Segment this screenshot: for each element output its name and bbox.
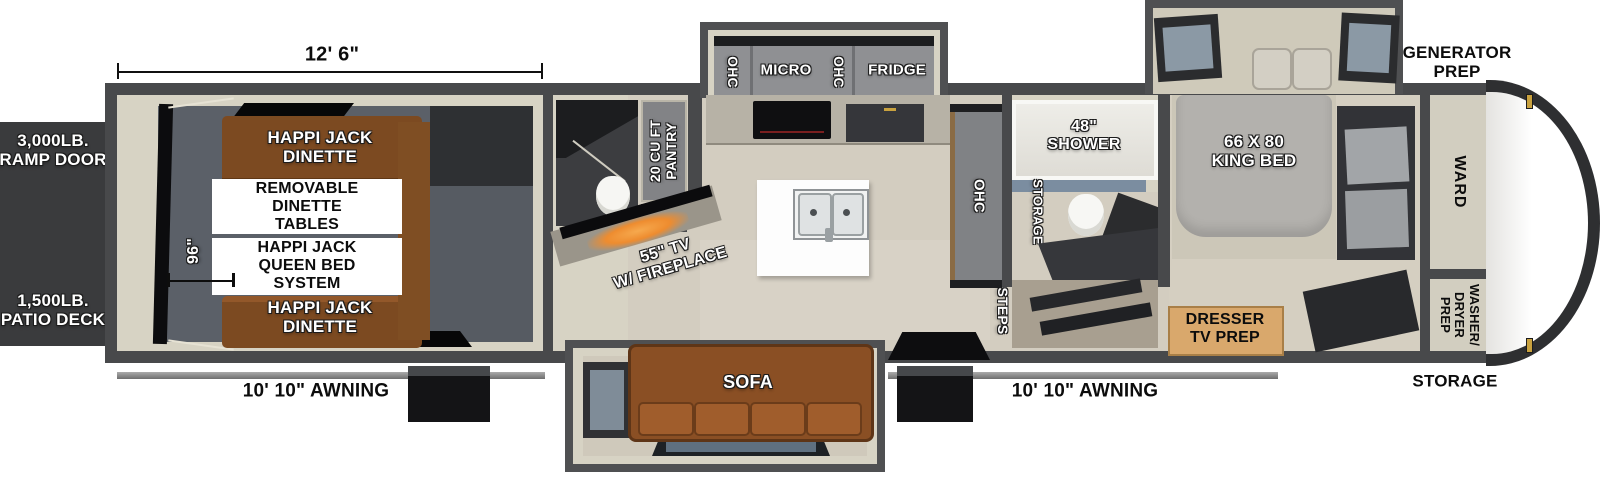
kitchen-cabinet-divider-1 <box>750 46 753 98</box>
sink-drain-right <box>843 209 850 216</box>
dinette-front-label: HAPPI JACK DINETTE <box>268 128 373 166</box>
bedroom-window-right-glass <box>1347 23 1391 73</box>
queen-bed-label: HAPPI JACK QUEEN BED SYSTEM <box>258 239 357 293</box>
sofa-label: SOFA <box>723 372 773 392</box>
removable-tables-label: REMOVABLE DINETTE TABLES <box>256 180 359 234</box>
cooktop <box>753 101 831 139</box>
kitchen-wall-ohc-top <box>950 104 1002 112</box>
ward-wd-divider <box>1430 269 1488 279</box>
garage-height-dim-line <box>168 280 234 282</box>
garage-width-dim-line <box>118 71 542 73</box>
shower-label: 48" SHOWER <box>1047 118 1120 154</box>
dinette-side-column <box>398 122 430 340</box>
pantry-label: 20 CU FT PANTRY <box>648 120 680 182</box>
garage-floor-dark <box>430 106 533 186</box>
awning-right-label: 10' 10" AWNING <box>1012 380 1159 401</box>
sofa-seat-4 <box>806 402 862 436</box>
ramp-door-label: 3,000LB. RAMP DOOR <box>0 131 108 169</box>
cap-latch-bottom <box>1526 338 1533 353</box>
dishwasher-handle <box>884 108 896 111</box>
sink-drain-left <box>810 209 817 216</box>
floorplan-canvas: 3,000LB. RAMP DOOR 1,500LB. PATIO DECK 1… <box>0 0 1600 481</box>
micro-label: MICRO <box>761 63 812 80</box>
ward-label: WARD <box>1450 156 1468 209</box>
bath-storage-label: STORAGE <box>1030 179 1045 244</box>
dresser-label: DRESSER TV PREP <box>1186 311 1265 347</box>
cap-latch-top <box>1526 94 1533 109</box>
king-bed-label: 66 X 80 KING BED <box>1212 132 1297 170</box>
kitchen-cabinet-top-strip <box>714 36 934 46</box>
sofa-seat-2 <box>694 402 750 436</box>
bathroom-right-wall <box>1158 95 1170 287</box>
garage-height-dim-label: 96" <box>185 238 203 264</box>
sink-faucet <box>825 228 833 242</box>
ohc-wall-label: OHC <box>970 179 987 213</box>
ward-wall <box>1420 95 1430 351</box>
kitchen-cabinet-divider-2 <box>852 46 855 98</box>
bathroom-left-wall <box>1002 95 1012 287</box>
toilet-main-bath <box>1068 194 1104 236</box>
dim-tick-right <box>541 63 543 79</box>
bed-pillow-left <box>1252 48 1292 90</box>
cooktop-accent <box>760 131 824 133</box>
front-storage-label: STORAGE <box>1412 371 1497 390</box>
entry-step-garage <box>408 366 490 422</box>
garage-height-tick-right <box>232 273 235 287</box>
closet-mirror-bottom <box>1345 189 1409 249</box>
closet-mirror-top <box>1345 126 1410 184</box>
garage-living-wall <box>543 95 553 351</box>
bedroom-window-left-glass <box>1163 24 1214 71</box>
awning-left-label: 10' 10" AWNING <box>243 380 390 401</box>
fridge-label: FRIDGE <box>868 63 926 80</box>
steps-label: STEPS <box>994 288 1010 335</box>
ohc-left-label: OHC <box>724 56 740 88</box>
patio-deck-label: 1,500LB. PATIO DECK <box>0 291 108 329</box>
garage-floor-right <box>430 186 533 342</box>
dinette-rear-label: HAPPI JACK DINETTE <box>268 298 373 336</box>
sofa-seat-1 <box>638 402 694 436</box>
entry-step-main <box>897 366 973 422</box>
bed-pillow-right <box>1292 48 1332 90</box>
garage-height-tick-left <box>167 273 170 287</box>
sofa-seat-3 <box>750 402 806 436</box>
generator-prep-label: GENERATOR PREP <box>1403 43 1512 81</box>
garage-width-dim-label: 12' 6" <box>305 44 359 67</box>
ohc-mid-label: OHC <box>830 56 846 88</box>
washer-dryer-label: WASHER/ DRYER PREP <box>1437 284 1481 346</box>
dim-tick-left <box>117 63 119 79</box>
entry-door <box>888 332 990 360</box>
sofa-window-left-glass <box>590 370 624 430</box>
